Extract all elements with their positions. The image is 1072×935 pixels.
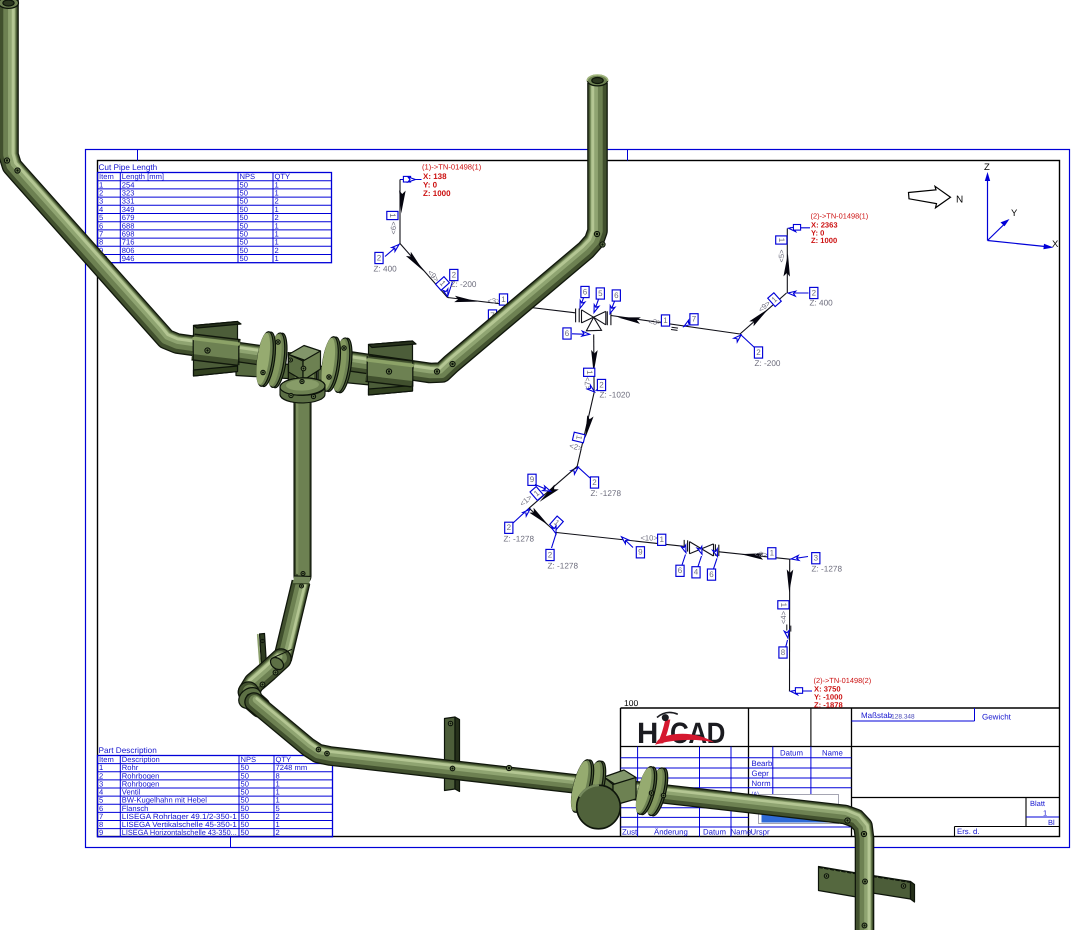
svg-text:6: 6 (709, 570, 714, 579)
svg-text:4: 4 (694, 568, 699, 577)
svg-text:(2)->TN-01498(1): (2)->TN-01498(1) (811, 212, 869, 221)
svg-text:Bearb: Bearb (752, 759, 773, 768)
svg-text:50: 50 (240, 254, 248, 263)
svg-text:3: 3 (814, 554, 819, 563)
svg-text:H: H (637, 717, 658, 750)
svg-text:-128.348: -128.348 (889, 714, 915, 721)
svg-text:9: 9 (638, 548, 643, 557)
svg-text:<8>: <8> (755, 550, 769, 559)
svg-text:Z: -1278: Z: -1278 (591, 489, 622, 498)
svg-text:2: 2 (599, 380, 604, 389)
svg-text:Bl: Bl (1048, 818, 1055, 827)
svg-text:2: 2 (812, 288, 817, 297)
svg-text:1: 1 (275, 254, 279, 263)
svg-text:1: 1 (777, 238, 786, 243)
svg-text:1: 1 (770, 549, 775, 558)
svg-text:Datum: Datum (703, 828, 726, 837)
svg-text:Urspr: Urspr (751, 828, 770, 837)
svg-text:<6>: <6> (389, 221, 398, 235)
svg-text:1: 1 (779, 603, 788, 608)
svg-text:1: 1 (1043, 809, 1047, 818)
svg-text:Cut Pipe Length: Cut Pipe Length (99, 163, 158, 172)
svg-text:Y: Y (1011, 208, 1018, 219)
svg-text:<4>: <4> (779, 610, 788, 624)
svg-text:N: N (956, 195, 963, 206)
svg-text:Z: -1278: Z: -1278 (504, 535, 535, 544)
svg-text:Z: -200: Z: -200 (755, 359, 781, 368)
svg-text:7248 mm: 7248 mm (276, 763, 308, 772)
svg-text:Z: 1000: Z: 1000 (423, 189, 451, 198)
svg-text:1: 1 (501, 295, 506, 304)
svg-text:2: 2 (507, 523, 512, 532)
svg-text:Gepr: Gepr (752, 769, 770, 778)
svg-text:1: 1 (659, 535, 664, 544)
svg-text:Part Description: Part Description (99, 746, 158, 755)
svg-text:Z: 400: Z: 400 (810, 299, 834, 308)
svg-text:50: 50 (241, 828, 249, 837)
svg-text:1: 1 (388, 213, 397, 218)
svg-text:Änderung: Änderung (654, 828, 688, 837)
svg-text:Z: -200: Z: -200 (451, 280, 477, 289)
svg-text:Norm: Norm (752, 779, 771, 788)
svg-text:2: 2 (452, 270, 457, 279)
svg-text:<10>: <10> (641, 534, 659, 543)
svg-text:9: 9 (530, 475, 535, 484)
svg-text:2: 2 (548, 550, 553, 559)
svg-text:2: 2 (592, 478, 597, 487)
svg-text:100: 100 (624, 698, 638, 708)
svg-text:7: 7 (692, 315, 697, 324)
svg-text:Blatt: Blatt (1030, 799, 1046, 808)
svg-text:Z: -1878: Z: -1878 (814, 701, 843, 710)
svg-text:Gewicht: Gewicht (982, 713, 1012, 722)
svg-text:LISEGA Horizontalschelle 43-35: LISEGA Horizontalschelle 43-350... (122, 828, 237, 837)
svg-text:X: X (1052, 239, 1059, 250)
svg-text:6: 6 (678, 566, 683, 575)
svg-text:Name: Name (822, 749, 843, 758)
svg-text:Z: -1278: Z: -1278 (548, 562, 579, 571)
svg-text:(2)->TN-01498(2): (2)->TN-01498(2) (814, 676, 872, 685)
svg-text:946: 946 (122, 254, 135, 263)
svg-text:2: 2 (377, 253, 382, 262)
svg-text:Ers. d.: Ers. d. (957, 827, 980, 836)
svg-text:Z: -1278: Z: -1278 (812, 565, 843, 574)
svg-text:1: 1 (663, 316, 668, 325)
svg-text:CAD: CAD (670, 717, 725, 750)
svg-text:2: 2 (756, 348, 761, 357)
svg-text:Maßstab: Maßstab (861, 711, 893, 720)
svg-text:<3>: <3> (649, 318, 663, 327)
svg-text:Z: 1000: Z: 1000 (811, 236, 837, 245)
svg-text:Name: Name (731, 828, 752, 837)
svg-text:<5>: <5> (777, 249, 786, 263)
svg-text:Z: 400: Z: 400 (374, 265, 398, 274)
svg-text:1: 1 (585, 370, 594, 375)
svg-text:Zust: Zust (622, 828, 638, 837)
svg-text:6: 6 (565, 329, 570, 338)
svg-text:Z: -1020: Z: -1020 (600, 391, 631, 400)
svg-text:(1)->TN-01498(1): (1)->TN-01498(1) (422, 163, 482, 172)
svg-text:6: 6 (614, 291, 619, 300)
svg-text:6: 6 (583, 287, 588, 296)
svg-text:Datum: Datum (780, 749, 803, 758)
svg-text:5: 5 (598, 289, 603, 298)
svg-text:Z: Z (984, 162, 990, 173)
svg-text:9: 9 (99, 828, 103, 837)
svg-text:2: 2 (276, 828, 280, 837)
svg-text:8: 8 (781, 648, 786, 657)
